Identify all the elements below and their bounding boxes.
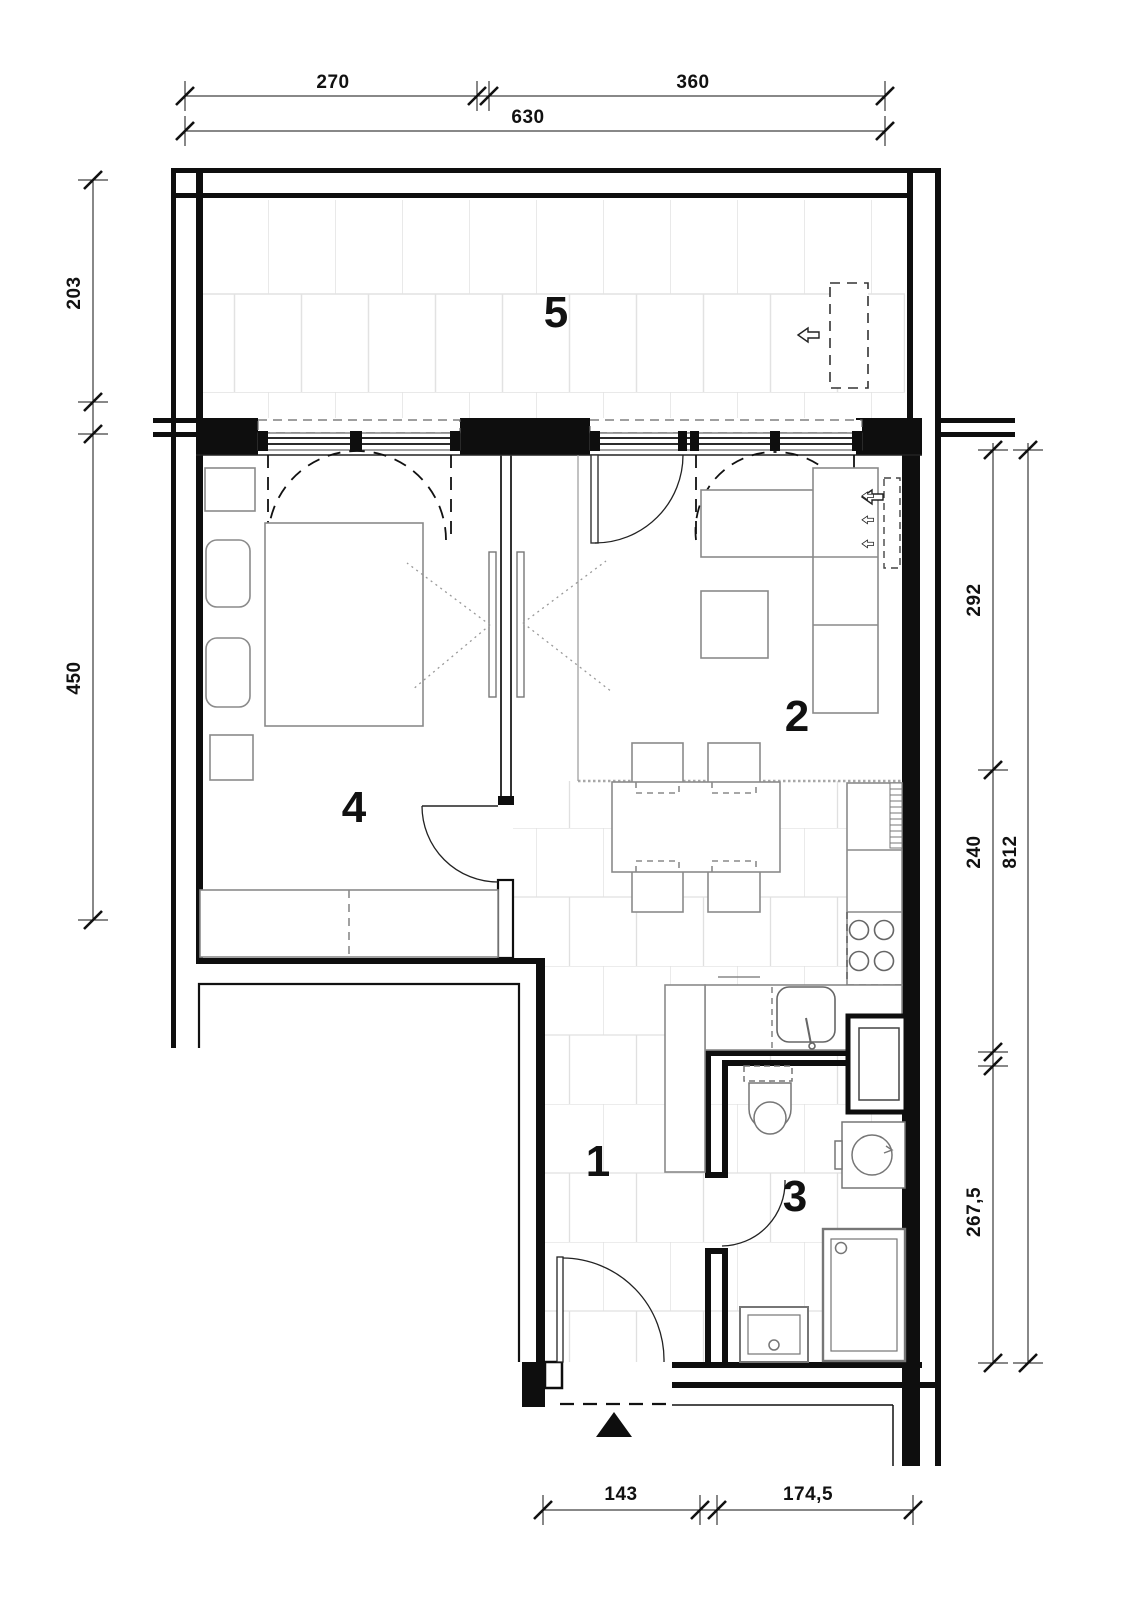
floor-plan-page: 1 2 3 4 5 270 360 630 203 450 292 240 26… <box>0 0 1128 1624</box>
dim-right-240: 240 <box>964 835 985 868</box>
dim-top-630: 630 <box>511 107 544 128</box>
sliding-panel <box>517 552 524 697</box>
bathroom-wall <box>722 1248 728 1362</box>
left-stub-wall <box>153 432 196 437</box>
bedroom-door <box>422 806 498 882</box>
floor-plan-drawing: 1 2 3 4 5 270 360 630 203 450 292 240 26… <box>0 0 1128 1624</box>
bottom-wall <box>672 1382 941 1388</box>
coffee-table <box>701 591 768 658</box>
nightstand <box>210 735 253 780</box>
room-label-3: 3 <box>783 1172 807 1221</box>
window-frame <box>590 433 862 450</box>
dim-right-292: 292 <box>964 583 985 616</box>
balcony-top-wall-outer <box>171 168 941 173</box>
sliding-door <box>407 455 612 781</box>
window-cap <box>258 431 268 451</box>
room-label-2: 2 <box>785 692 809 741</box>
balcony-door-leaf <box>591 455 598 543</box>
balcony-top-wall-inner <box>171 193 908 198</box>
kitchen-radiator <box>890 783 902 848</box>
bathroom-wall <box>705 1050 711 1178</box>
entrance-jamb <box>545 1362 562 1388</box>
partition-end-cap <box>498 796 514 805</box>
dim-right-267-5: 267,5 <box>964 1187 985 1237</box>
door-swing <box>422 806 498 882</box>
partition-wall-line <box>510 455 512 798</box>
dim-bottom-143: 143 <box>604 1484 637 1505</box>
nightstand <box>205 468 255 511</box>
front-wall-segment <box>196 418 258 455</box>
balcony-unit-dashed <box>830 283 868 388</box>
dim-left-203: 203 <box>64 276 85 309</box>
partition-wall-line <box>500 455 502 798</box>
hall-left-wall <box>536 964 545 1388</box>
bedroom-bottom-wall <box>196 958 545 964</box>
dim-top-270: 270 <box>316 72 349 93</box>
living-room-furniture <box>701 468 878 713</box>
sliding-direction-lines <box>407 561 612 692</box>
room-label-5: 5 <box>544 288 568 337</box>
window-mullion <box>350 431 362 451</box>
entrance-door-leaf <box>557 1257 563 1362</box>
bedroom-door-jamb <box>498 880 513 958</box>
front-wall-segment <box>856 418 922 455</box>
window-cap <box>450 431 460 451</box>
neighbour-wall-line <box>199 984 519 1362</box>
right-wall-outer <box>935 168 941 1466</box>
shower-tray <box>823 1229 905 1361</box>
left-wall-outer <box>171 168 176 1048</box>
dim-bottom-174-5: 174,5 <box>783 1484 833 1505</box>
room-label-4: 4 <box>342 783 367 832</box>
pillow <box>206 540 250 607</box>
bathroom-wall <box>705 1248 711 1362</box>
right-wall-balcony-inner <box>907 173 913 437</box>
radiator-dashed <box>884 478 900 568</box>
bathroom-wall <box>722 1060 728 1178</box>
window-cap <box>590 431 600 451</box>
left-stub-wall <box>153 418 196 423</box>
double-bed <box>265 523 423 726</box>
tall-cabinet <box>665 985 705 1172</box>
window-mullion <box>770 431 780 451</box>
dim-right-812: 812 <box>1000 835 1021 868</box>
dim-top-360: 360 <box>676 72 709 93</box>
wash-basin <box>740 1307 808 1362</box>
bathroom-door-jamb <box>705 1172 728 1178</box>
right-stub-wall <box>941 418 1015 423</box>
kitchen-sink <box>777 987 835 1049</box>
window-threshold-dashed <box>590 420 862 433</box>
room-label-1: 1 <box>586 1137 610 1186</box>
left-wall-inner <box>196 173 203 958</box>
balcony-door-swing <box>595 455 683 543</box>
right-stub-wall <box>941 432 1015 437</box>
sofa-seat <box>813 468 878 713</box>
washing-machine <box>835 1122 905 1188</box>
entrance-left-block <box>522 1362 545 1407</box>
bedroom-balcony-window <box>258 420 460 540</box>
dining-table <box>612 782 780 872</box>
front-wall-pillar <box>460 418 590 455</box>
entrance-arrow-icon <box>596 1412 632 1437</box>
duct-shaft <box>848 1016 906 1112</box>
bedroom-furniture <box>200 468 498 957</box>
window-mullion <box>678 431 687 451</box>
window-cap <box>852 431 862 451</box>
pillow <box>206 638 250 707</box>
window-mullion <box>690 431 699 451</box>
dim-left-450: 450 <box>64 661 85 694</box>
